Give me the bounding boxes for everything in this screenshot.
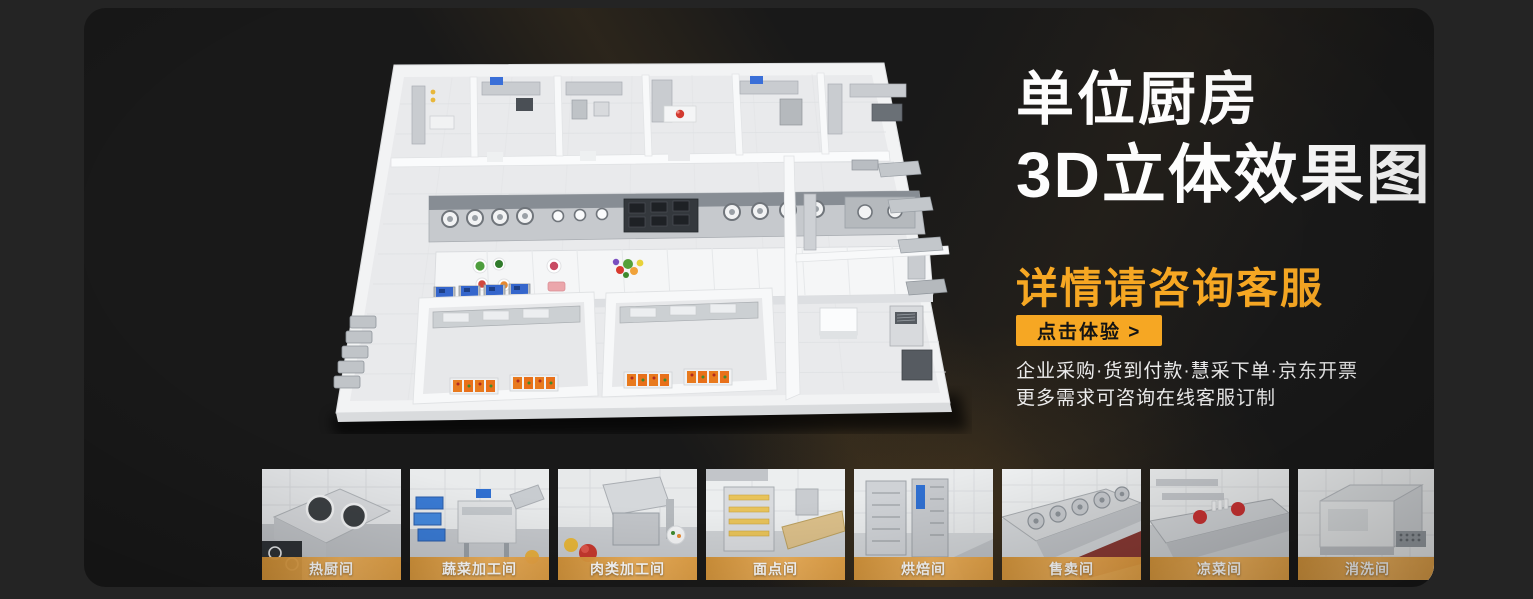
thumb-label: 售卖间 [1002,557,1141,580]
thumb-selling[interactable]: 售卖间 [1002,469,1141,580]
info-line-2: 更多需求可咨询在线客服订制 [1016,385,1358,412]
cta-button[interactable]: 点击体验 > [1016,315,1162,346]
promo-banner: { "hero": { "title_line1": "单位厨房", "titl… [0,0,1533,599]
floorplan-cook-line [429,191,925,242]
thumb-label: 烘焙间 [854,557,993,580]
thumb-cold-dish[interactable]: 凉菜间 [1150,469,1289,580]
food-tray-display [624,372,672,388]
thumb-vegetable-processing[interactable]: 蔬菜加工间 [410,469,549,580]
page-title-line1: 单位厨房 [1016,70,1260,131]
food-tray-display [684,369,732,385]
thumb-pastry[interactable]: 面点间 [706,469,845,580]
thumb-label: 肉类加工间 [558,557,697,580]
floorplan-serving-room-1 [413,292,598,404]
thumb-label: 热厨间 [262,557,401,580]
thumb-baking[interactable]: 烘焙间 [854,469,993,580]
consult-subtitle: 详情请咨询客服 [1016,255,1324,316]
floorplan-serving-room-2 [602,288,777,397]
thumb-label: 消洗间 [1298,557,1434,580]
room-gallery: 热厨间 蔬菜加工间 [262,469,1434,580]
food-tray-display [510,375,558,391]
purchase-info: 企业采购·货到付款·慧采下单·京东开票 更多需求可咨询在线客服订制 [1016,358,1358,412]
food-tray-display [450,378,498,394]
thumb-label: 蔬菜加工间 [410,557,549,580]
thumb-meat-processing[interactable]: 肉类加工间 [558,469,697,580]
page-title-line2: 3D立体效果图 [1016,142,1432,209]
thumb-hot-kitchen[interactable]: 热厨间 [262,469,401,580]
kitchen-floorplan-3d-render [312,44,972,434]
thumb-label: 面点间 [706,557,845,580]
thumb-washing[interactable]: 消洗间 [1298,469,1434,580]
thumb-label: 凉菜间 [1150,557,1289,580]
banner-panel: 单位厨房 3D立体效果图 详情请咨询客服 点击体验 > 企业采购·货到付款·慧采… [84,8,1434,587]
info-line-1: 企业采购·货到付款·慧采下单·京东开票 [1016,358,1358,385]
